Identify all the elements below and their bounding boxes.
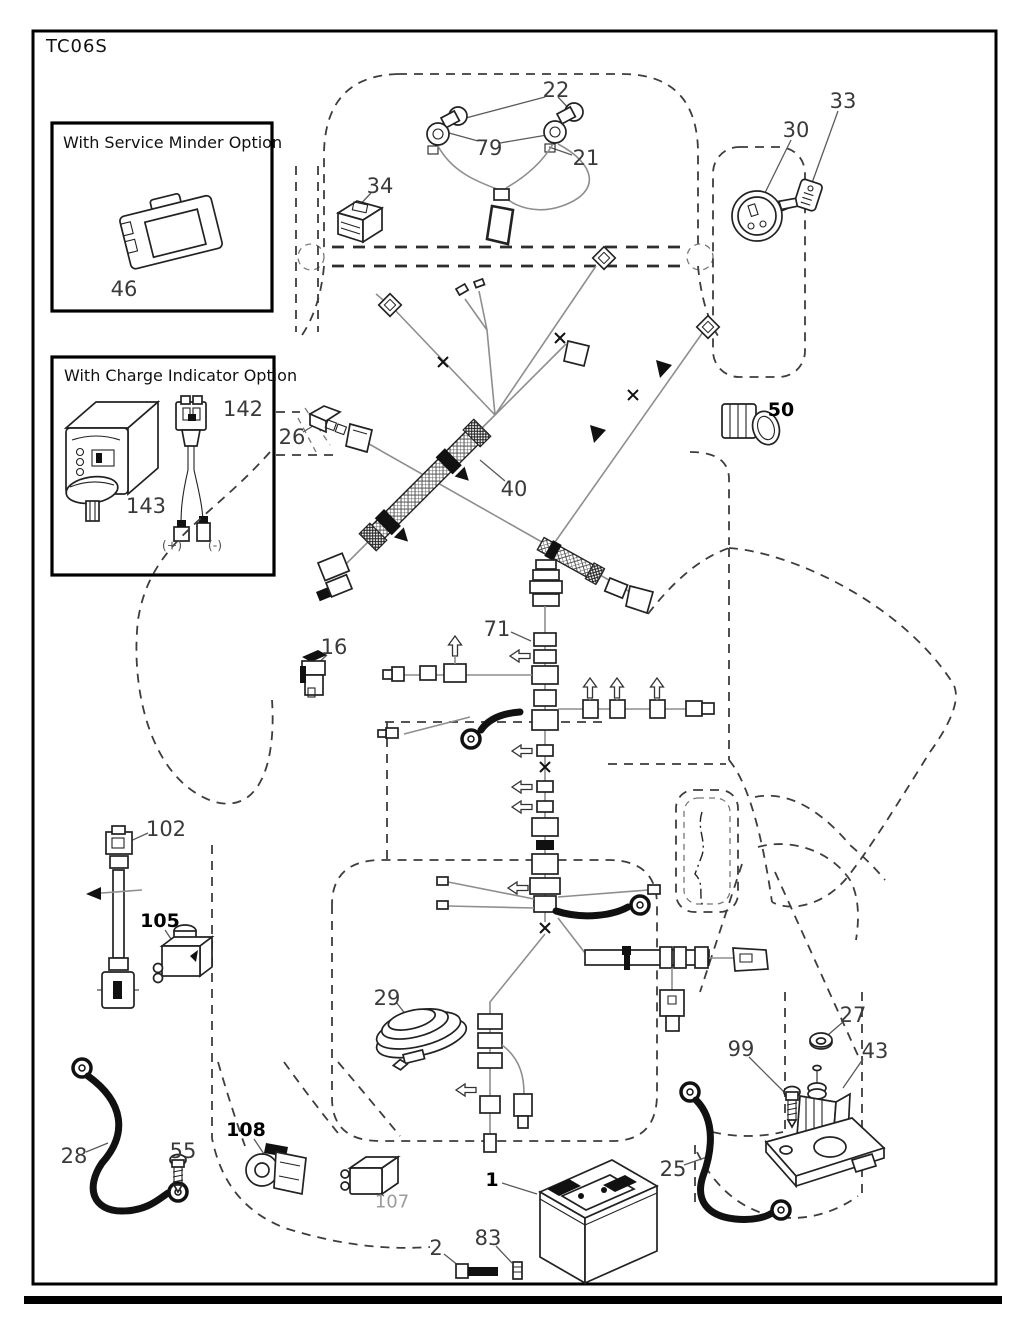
headlight-bulb-right-22 — [557, 103, 583, 124]
headlight-socket-left-79 — [427, 123, 449, 154]
harness-end-connector-left — [316, 553, 352, 601]
horn-29 — [367, 987, 472, 1074]
starter-solenoid-108 — [246, 1139, 306, 1194]
headlight-harness-21 — [427, 97, 589, 244]
hour-meter-50 — [722, 404, 784, 448]
switch-105 — [154, 925, 213, 983]
charge-indicator-box — [52, 357, 274, 575]
harness-end-connector-right — [605, 578, 653, 613]
seat-switch-16 — [300, 650, 327, 697]
solenoid-bracket-43 — [766, 1059, 884, 1186]
battery-1 — [502, 1160, 657, 1283]
braided-loom-main — [359, 419, 502, 562]
relay-34 — [338, 193, 382, 242]
fuse-assembly-102 — [86, 826, 148, 1008]
diagram-art — [0, 0, 1024, 1333]
page-title: TC06S — [46, 36, 108, 57]
main-harness-40 — [316, 247, 719, 613]
parts-diagram-page: TC06S With Service Minder Option With Ch… — [0, 0, 1024, 1333]
connector-26 — [303, 406, 346, 435]
service-minder-box-title: With Service Minder Option — [63, 133, 282, 152]
center-harness-71 — [378, 560, 714, 933]
bolt-99 — [749, 1057, 800, 1127]
battery-spacer-83 — [496, 1246, 522, 1279]
charge-indicator-box-title: With Charge Indicator Option — [64, 366, 297, 385]
battery-bolt-2 — [444, 1254, 498, 1278]
ignition-key-33 — [777, 111, 838, 219]
nut-27 — [810, 1022, 843, 1049]
ignition-switch-30 — [732, 140, 795, 241]
lower-harness-run — [456, 918, 768, 1152]
ground-cable-28 — [73, 1059, 187, 1211]
relay-module-107 — [341, 1157, 398, 1196]
